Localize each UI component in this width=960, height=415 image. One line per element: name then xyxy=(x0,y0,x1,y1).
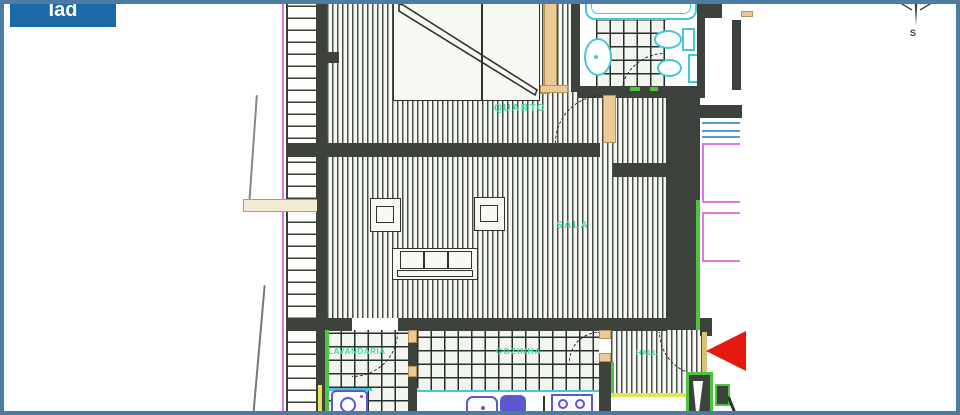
fringe-sala-right-wall xyxy=(696,200,700,330)
washbasin xyxy=(584,38,612,76)
wardrobe-bed-block xyxy=(393,0,540,101)
armchair-left-seat xyxy=(376,206,394,223)
room-label-hall: HALL xyxy=(636,348,658,357)
room-label-sala: SALA xyxy=(556,220,589,231)
sofa-backrest xyxy=(397,270,473,277)
agency-logo: Iad xyxy=(10,0,116,27)
floor-plan-page: QUARTO SALA LAVANDARIA COZINHA HALL S Ia… xyxy=(0,0,960,415)
window-right-mid-line xyxy=(702,130,740,132)
sofa-seat xyxy=(400,251,424,269)
wall-quarto-sala-right xyxy=(613,163,668,177)
fringe-bath-bottom-dash xyxy=(650,87,658,91)
washing-machine-knob xyxy=(360,395,363,398)
washbasin-drain xyxy=(594,55,598,59)
stove-burner xyxy=(575,399,585,409)
sofa-seat xyxy=(424,251,448,269)
bathroom-door-leaf-vertical xyxy=(544,0,557,88)
wardrobe-door-diagonal xyxy=(394,0,541,101)
hall-door-cap xyxy=(599,353,611,362)
wall-bathroom-left xyxy=(571,0,580,92)
balcony-rail-lower xyxy=(702,212,740,262)
wall-corridor-right xyxy=(732,20,741,90)
hall-door-cap xyxy=(599,330,611,339)
sofa-seat xyxy=(448,251,472,269)
kitchen-sink-basin xyxy=(466,396,498,415)
wall-kitchen-top-mid xyxy=(398,318,667,331)
entrance-door-wedge xyxy=(689,375,710,412)
compass-south-label: S xyxy=(910,28,916,38)
toilet-tank xyxy=(682,28,695,51)
fringe-bath-top xyxy=(608,0,680,3)
entrance-door-elevation xyxy=(686,372,713,415)
bathroom-door-leaf-horizontal xyxy=(540,85,568,93)
kitchen-sink-drain xyxy=(481,406,485,410)
sofa xyxy=(392,248,478,280)
compass-rose: S xyxy=(893,0,939,44)
washing-machine-door xyxy=(340,397,356,413)
toilet-bowl xyxy=(654,30,682,49)
quarto-door-leaf xyxy=(603,95,616,143)
stove-burner xyxy=(558,399,568,409)
room-label-lavandaria: LAVANDARIA xyxy=(328,347,386,356)
corridor-door-mark xyxy=(741,11,753,17)
wall-stub-top-left xyxy=(317,52,339,63)
wall-kitchen-top-left xyxy=(286,318,352,331)
armchair-right-seat xyxy=(480,205,498,222)
armchair-right xyxy=(474,197,505,231)
balcony-beam xyxy=(243,199,323,212)
divider-door-cap xyxy=(408,366,417,377)
window-right xyxy=(702,122,740,138)
sketch-line xyxy=(248,95,257,205)
divider-door-cap xyxy=(408,330,417,343)
kitchen-sink-drainer xyxy=(500,395,526,415)
bathtub xyxy=(585,0,697,20)
balcony-rail-upper xyxy=(702,143,740,203)
wall-sala-right xyxy=(666,98,700,330)
sketch-line xyxy=(252,285,265,415)
entrance-arrow-marker xyxy=(705,330,747,372)
counter-divider-line xyxy=(543,396,545,415)
wall-quarto-sala-left xyxy=(286,143,600,157)
wall-cozinha-hall xyxy=(599,362,611,415)
compass-needle-icon xyxy=(893,0,939,30)
room-label-cozinha: COZINHA xyxy=(496,346,542,356)
fringe-lavandaria-left xyxy=(318,385,322,415)
armchair-left xyxy=(370,198,401,232)
washing-machine xyxy=(331,390,368,415)
stove xyxy=(551,394,593,415)
room-label-quarto: QUARTO xyxy=(494,103,546,114)
wall-top-right-horizontal xyxy=(688,105,742,118)
wall-corridor-top xyxy=(703,0,722,18)
fringe-bath-bottom-dash xyxy=(630,87,640,91)
fringe-kitchen-left xyxy=(325,330,329,415)
entrance-side-piece xyxy=(715,384,730,406)
